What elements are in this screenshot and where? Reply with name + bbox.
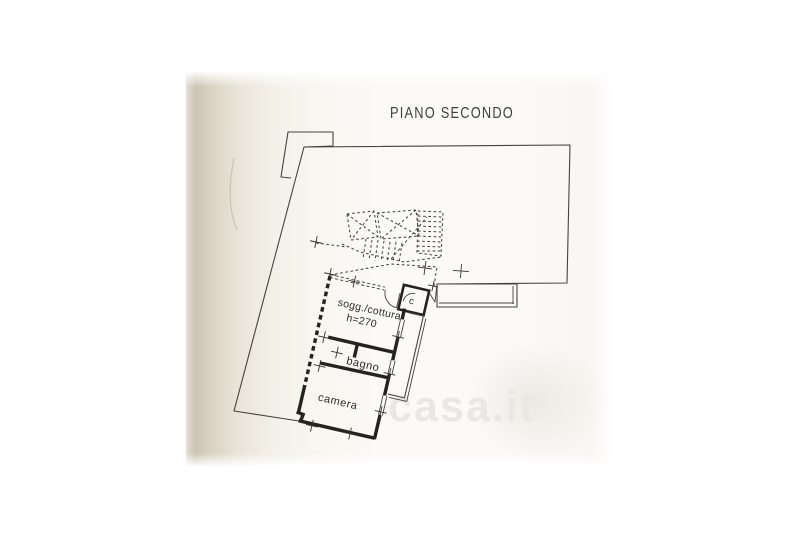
stair-shaft-left (347, 211, 378, 240)
tick-cross (309, 235, 323, 249)
outline-left-edge (234, 146, 333, 421)
tick-cross (330, 345, 344, 359)
casa-it-watermark: casa.it (388, 382, 536, 431)
terrace-inner-lines (439, 286, 514, 304)
stairwell (342, 210, 443, 263)
left-wall-solid (299, 385, 305, 412)
outline-top-right-edge (304, 145, 570, 284)
party-wall-left (304, 276, 330, 387)
stair-flight-right-outline (417, 211, 443, 256)
tick-cross (312, 359, 326, 373)
stair-bottom-boundary (342, 244, 441, 262)
terrace-outline (437, 284, 517, 307)
stair-shaft-right (377, 210, 419, 239)
stair-treads-right (417, 216, 442, 251)
dimension-ticks (309, 235, 470, 292)
plan-title: PIANO SECONDO (390, 105, 514, 122)
stair-treads-middle (363, 239, 402, 263)
hall-bath-divider (354, 344, 357, 358)
corridor-top-line (316, 243, 347, 247)
building-outline (234, 132, 570, 421)
living-bath-wall (328, 337, 394, 352)
corridor-boundary (316, 243, 437, 286)
floor-plan-drawing: casa.it (0, 0, 800, 533)
tick-cross (453, 263, 470, 278)
floorplan-page: casa.it (0, 0, 800, 533)
entrance-door-arc (382, 290, 400, 308)
pencil-scuff (230, 158, 237, 230)
closet-label: c (408, 296, 415, 308)
terrace-right (437, 284, 517, 307)
closet: c (398, 285, 429, 315)
bedroom-bottom-wall (299, 421, 375, 439)
window-bath (388, 360, 395, 375)
tick-cross (417, 260, 433, 276)
outline-top-left-flap (281, 132, 333, 178)
bedroom-label: camera (317, 392, 359, 413)
